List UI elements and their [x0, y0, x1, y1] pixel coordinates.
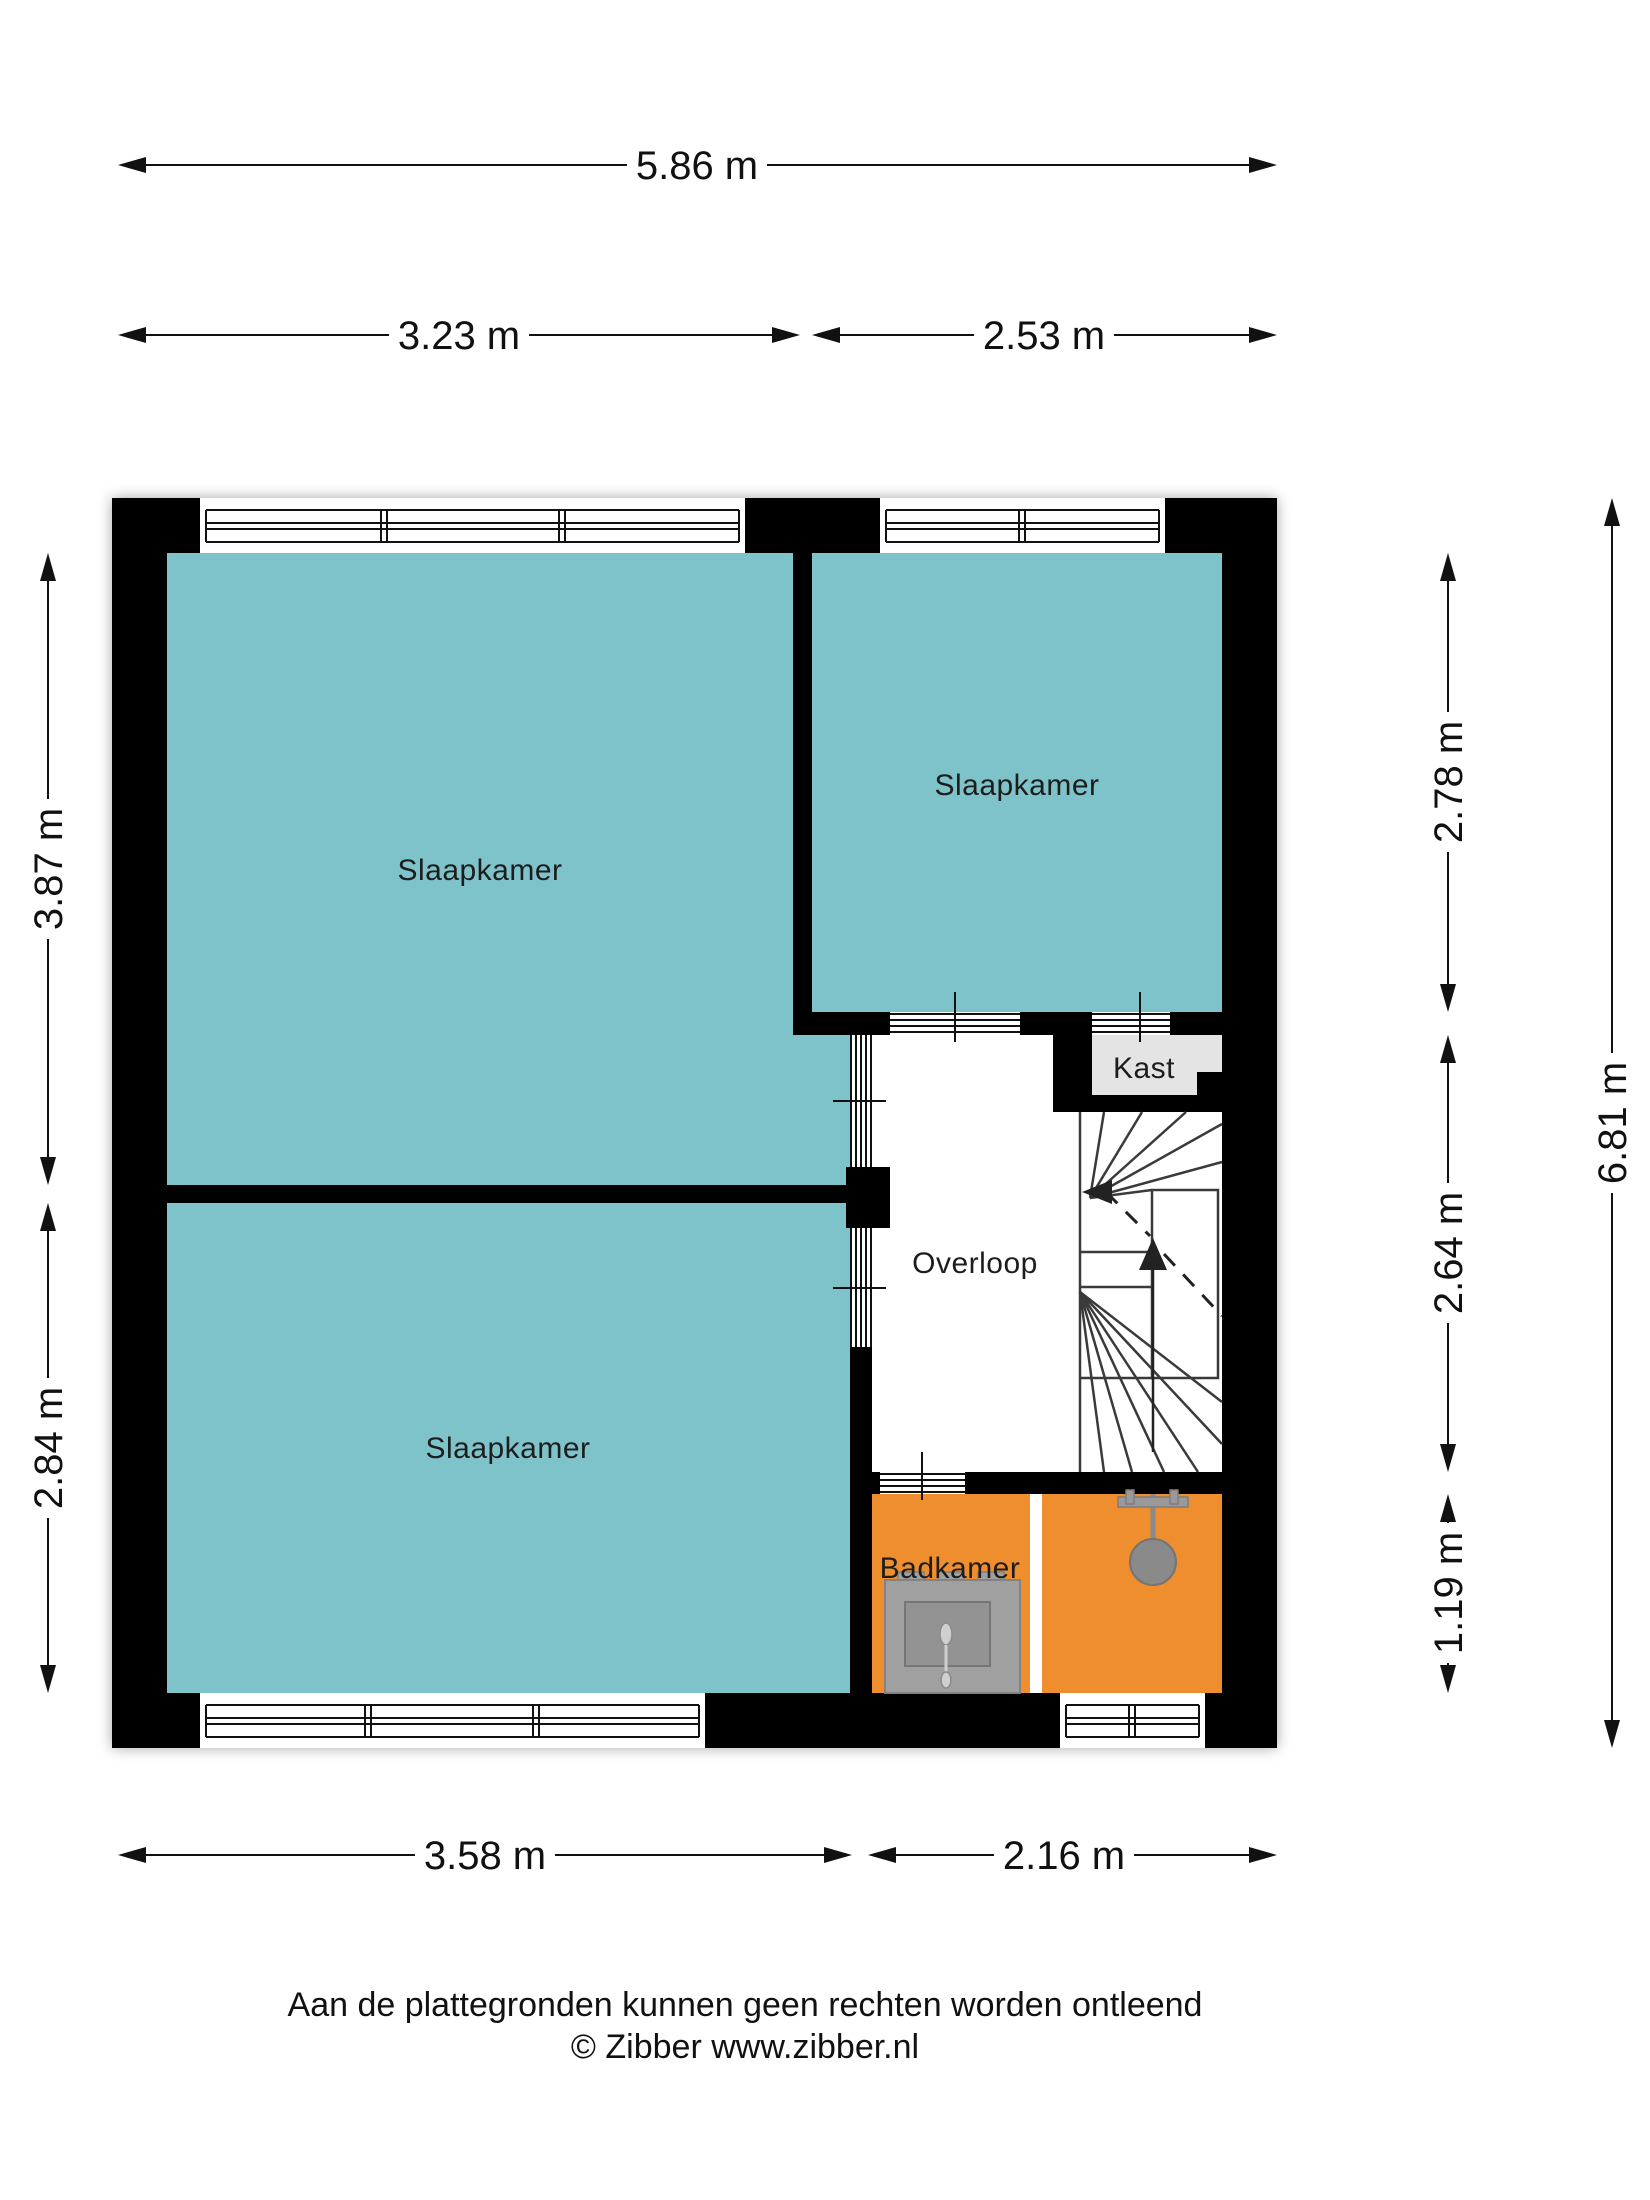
window-top-left [200, 498, 745, 553]
svg-text:6.81 m: 6.81 m [1591, 1062, 1635, 1184]
svg-text:2.16 m: 2.16 m [1003, 1834, 1125, 1878]
svg-text:2.78 m: 2.78 m [1427, 721, 1471, 843]
floorplan-svg: Slaapkamer Slaapkamer Slaapkamer Overloo… [0, 0, 1650, 2200]
dim-bottom-left: 3.58 m [118, 1830, 852, 1880]
wall-bedroom-divider [167, 1185, 850, 1203]
dim-left-lower: 2.84 m [23, 1203, 73, 1693]
room-label-slaapkamer-top-left: Slaapkamer [397, 854, 562, 887]
dim-right-middle: 2.64 m [1423, 1035, 1473, 1472]
svg-text:2.64 m: 2.64 m [1427, 1192, 1471, 1314]
dim-right-total: 6.81 m [1587, 498, 1637, 1748]
dim-top-right: 2.53 m [812, 310, 1277, 360]
window-top-right [880, 498, 1165, 553]
room-label-slaapkamer-bottom-left: Slaapkamer [425, 1432, 590, 1465]
footer-disclaimer: Aan de plattegronden kunnen geen rechten… [288, 1986, 1203, 2024]
room-label-overloop: Overloop [912, 1247, 1038, 1280]
footer-copyright: © Zibber www.zibber.nl [571, 2028, 919, 2066]
room-label-slaapkamer-top-right: Slaapkamer [934, 769, 1099, 802]
wall-junction-mid [846, 1167, 890, 1228]
room-label-badkamer: Badkamer [880, 1552, 1021, 1585]
dim-left-upper: 3.87 m [23, 553, 73, 1185]
dim-top-total: 5.86 m [118, 140, 1277, 190]
dim-top-left: 3.23 m [118, 310, 800, 360]
window-bottom-right [1060, 1693, 1205, 1748]
svg-text:3.23 m: 3.23 m [398, 314, 520, 358]
svg-text:5.86 m: 5.86 m [636, 144, 758, 188]
room-label-kast: Kast [1113, 1052, 1175, 1085]
building: Slaapkamer Slaapkamer Slaapkamer Overloo… [112, 498, 1277, 1748]
dim-right-lower: 1.19 m [1423, 1494, 1473, 1693]
svg-text:3.87 m: 3.87 m [27, 808, 71, 930]
wall-junction-top [793, 1012, 888, 1035]
svg-text:3.58 m: 3.58 m [424, 1834, 546, 1878]
shower-partition [1030, 1494, 1042, 1693]
dim-right-upper: 2.78 m [1423, 553, 1473, 1012]
dim-bottom-right: 2.16 m [868, 1830, 1277, 1880]
svg-text:2.53 m: 2.53 m [983, 314, 1105, 358]
svg-text:1.19 m: 1.19 m [1427, 1532, 1471, 1654]
svg-text:2.84 m: 2.84 m [27, 1387, 71, 1509]
sink-icon [885, 1572, 1020, 1693]
window-bottom-left [200, 1693, 705, 1748]
